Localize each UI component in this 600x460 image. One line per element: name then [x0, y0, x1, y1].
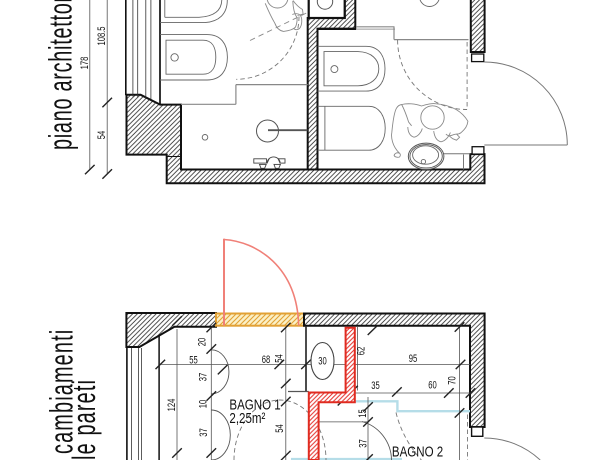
svg-text:20: 20: [196, 338, 209, 346]
svg-text:35: 35: [371, 380, 379, 393]
svg-text:2,25m²: 2,25m²: [229, 409, 265, 426]
svg-text:55: 55: [189, 354, 197, 367]
svg-text:108.5: 108.5: [96, 26, 109, 45]
svg-text:60: 60: [428, 379, 436, 392]
svg-text:15: 15: [357, 409, 370, 417]
svg-text:68: 68: [262, 354, 270, 367]
svg-text:54: 54: [96, 130, 109, 139]
svg-text:delle pareti: delle pareti: [66, 379, 102, 460]
svg-text:54: 54: [273, 354, 286, 363]
svg-text:30: 30: [318, 355, 326, 368]
svg-text:37: 37: [197, 373, 210, 381]
svg-text:piano architettonico: piano architettonico: [43, 0, 79, 150]
svg-text:95: 95: [409, 353, 417, 366]
svg-text:178: 178: [79, 57, 92, 70]
svg-text:37: 37: [357, 439, 370, 447]
svg-text:54: 54: [274, 424, 287, 433]
svg-text:70: 70: [446, 376, 459, 384]
svg-text:62: 62: [355, 347, 368, 355]
svg-text:BAGNO 2: BAGNO 2: [392, 443, 443, 460]
svg-text:37: 37: [198, 428, 211, 436]
svg-text:124: 124: [166, 398, 179, 411]
svg-text:10: 10: [197, 400, 210, 408]
